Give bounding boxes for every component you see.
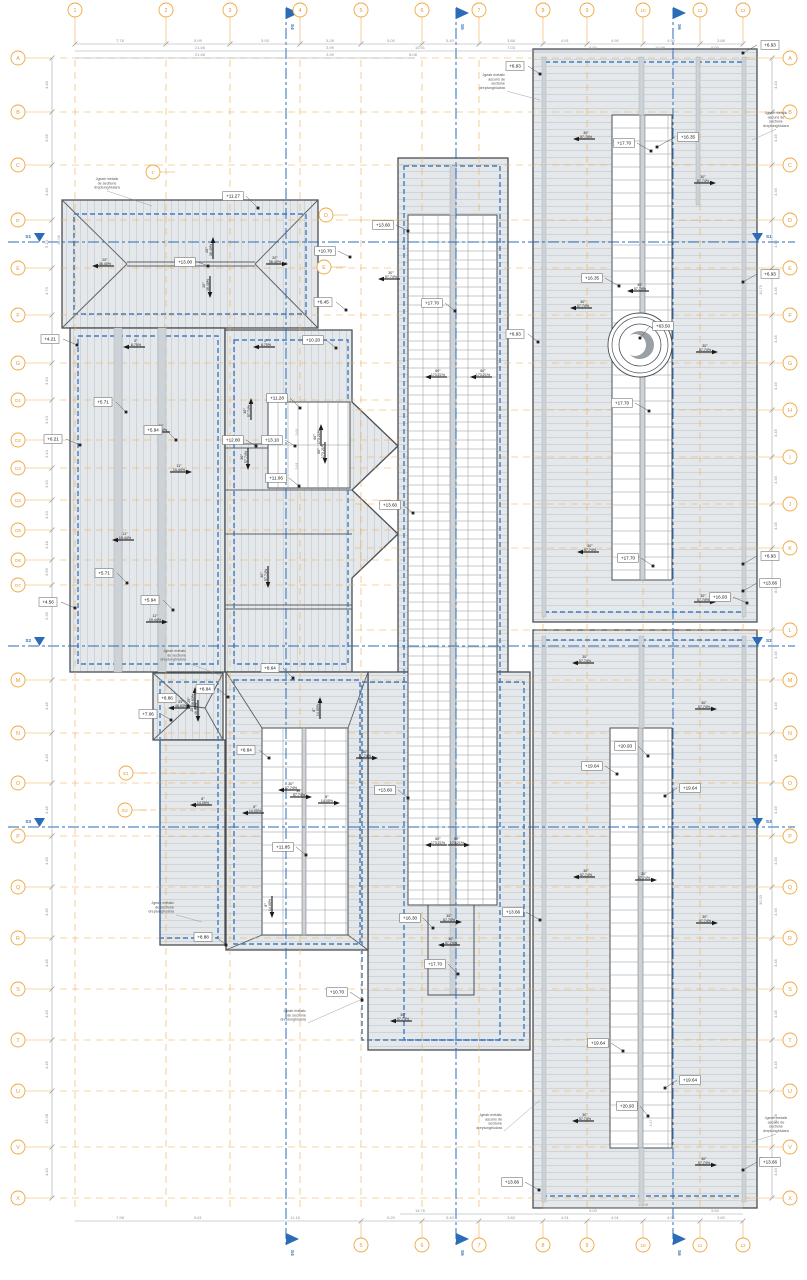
- label: 5.93: [261, 38, 270, 43]
- label: +6.93: [509, 332, 521, 337]
- roof-gutter-band: [639, 1148, 644, 1202]
- label: S6: [677, 1250, 682, 1256]
- label: 14.05%: [316, 703, 320, 716]
- skylight-mullion: [450, 215, 456, 905]
- label: 3.56: [44, 567, 49, 576]
- label: +17.70: [621, 556, 636, 561]
- label: +13.66: [763, 581, 778, 586]
- label: +13.10: [265, 438, 280, 443]
- label: 19.44%: [119, 536, 132, 540]
- label: N: [788, 731, 792, 737]
- label: +19.64: [591, 1041, 606, 1046]
- label: 7.98: [116, 1215, 125, 1220]
- label: D: [788, 218, 792, 224]
- label: +8.86: [161, 696, 173, 701]
- label: R: [788, 936, 792, 942]
- label: 4.45: [773, 753, 778, 762]
- leader-dot: [616, 773, 619, 776]
- label: 5: [360, 1243, 363, 1249]
- label: 4.45: [773, 521, 778, 530]
- label: 11: [698, 8, 703, 13]
- label: +8.84: [240, 748, 252, 753]
- leader-dot: [647, 755, 650, 758]
- label: 4.45: [773, 650, 778, 659]
- label: dreptunghiulara: [763, 1129, 790, 1133]
- label: dreptunghiulara: [148, 910, 175, 914]
- label: S: [16, 987, 20, 993]
- label: 173.21%: [450, 841, 465, 845]
- label: 4.40: [44, 80, 49, 89]
- leader-dot: [74, 607, 77, 610]
- label: 9: [586, 8, 589, 14]
- label: +13.00: [178, 260, 193, 265]
- label: 46.63%: [194, 702, 198, 715]
- label: +63.50: [656, 324, 671, 329]
- label: 3.85: [507, 1215, 516, 1220]
- label: 4.45: [773, 1009, 778, 1018]
- label: 6: [421, 1243, 424, 1249]
- leader-dot: [639, 337, 642, 340]
- label: 8.75%: [131, 343, 142, 347]
- label: 4.45: [44, 1060, 49, 1069]
- label: 3.18: [44, 540, 49, 549]
- label: 15.91: [415, 45, 426, 50]
- leader-dot: [432, 927, 435, 930]
- label: +16.35: [585, 276, 600, 281]
- label: 57.74%: [699, 919, 712, 923]
- label: +6.93: [509, 64, 521, 69]
- label: 57.74%: [699, 348, 712, 352]
- label: 15.09: [638, 1202, 649, 1207]
- label: +13.66: [763, 1160, 778, 1165]
- leader-dot: [539, 919, 542, 922]
- leader-dot: [650, 150, 653, 153]
- label: +19.64: [683, 786, 698, 791]
- label: D6: [15, 558, 21, 563]
- label: 4.90: [611, 38, 620, 43]
- label: 4.91: [611, 1215, 620, 1220]
- label: 10: [640, 8, 646, 13]
- label: S5: [460, 1250, 465, 1256]
- label: +6.93: [764, 272, 776, 277]
- label: 57.74%: [580, 135, 593, 139]
- label: 5.28: [326, 38, 335, 43]
- label: 30.33: [758, 894, 763, 905]
- roof-plan-svg: S4S4S5S5S6S6S1S1S2S2S3S37.785.995.935.28…: [0, 0, 807, 1280]
- label: +10.70: [318, 249, 333, 254]
- label: Q: [16, 885, 20, 891]
- label: 4.73: [44, 286, 49, 295]
- label: G: [788, 361, 792, 367]
- label: 36.40%: [99, 262, 112, 266]
- label: +5.71: [97, 400, 109, 405]
- label: +11.27: [226, 194, 240, 199]
- leader-dot: [170, 719, 173, 722]
- label: 4.45: [773, 958, 778, 967]
- label: S3: [766, 819, 772, 824]
- label: 5.30: [44, 611, 49, 620]
- label: 7: [478, 1243, 481, 1249]
- leader-dot: [537, 341, 540, 344]
- leader-dot: [227, 696, 230, 699]
- label: 7.78: [116, 38, 125, 43]
- label: +16.30: [403, 916, 418, 921]
- label: 12.28: [44, 1113, 49, 1124]
- label: +4.21: [44, 337, 56, 342]
- leader-dot: [125, 411, 128, 414]
- label: +7.06: [142, 712, 154, 717]
- label: 4.45: [773, 133, 778, 142]
- leader-dot: [361, 999, 364, 1002]
- label: 8: [542, 1243, 545, 1249]
- label: 4.40: [44, 187, 49, 196]
- label: S6: [677, 24, 682, 30]
- label: S2: [25, 638, 31, 643]
- label: +8.64: [264, 666, 276, 671]
- label: D: [324, 213, 328, 219]
- label: dreptunghiulara: [160, 658, 187, 662]
- label: S5: [460, 24, 465, 30]
- leader-dot: [225, 944, 228, 947]
- label: dreptunghiulara: [763, 124, 790, 128]
- label: 36.40%: [206, 278, 210, 291]
- leader-dot: [172, 609, 175, 612]
- label: 5: [360, 8, 363, 14]
- label: 3.61: [295, 463, 299, 470]
- label: E: [322, 265, 326, 271]
- label: 6: [421, 8, 424, 14]
- roof-gutter-band: [742, 636, 746, 1202]
- label: 14.05%: [249, 809, 262, 813]
- label: P: [16, 834, 20, 840]
- label: 4.45: [773, 805, 778, 814]
- label: 19.44%: [149, 618, 162, 622]
- label: H: [788, 408, 792, 414]
- label: +13.66: [506, 910, 521, 915]
- label: 4.45: [773, 907, 778, 916]
- label: 5.61: [194, 1215, 203, 1220]
- label: +19.64: [585, 764, 600, 769]
- label: 57.74%: [579, 1117, 592, 1121]
- leader-dot: [407, 230, 410, 233]
- label: 11.18: [290, 1215, 300, 1220]
- label: 57.74%: [634, 287, 647, 291]
- leader-dot: [664, 795, 667, 798]
- label: 57.74%: [697, 598, 710, 602]
- label: N: [16, 731, 20, 737]
- label: 4.90: [667, 38, 676, 43]
- leader-dot: [257, 207, 260, 210]
- label: 4.45: [773, 286, 778, 295]
- label: 8.75%: [261, 343, 272, 347]
- label: +10.70: [330, 990, 345, 995]
- leader-dot: [294, 445, 297, 448]
- label: E: [788, 266, 792, 272]
- label: +8.88: [197, 935, 209, 940]
- label: 57.74%: [247, 404, 251, 417]
- leader-dot: [349, 256, 352, 259]
- leader-dot: [407, 797, 410, 800]
- label: 3.10: [44, 376, 49, 385]
- label: 173.21%: [317, 429, 321, 444]
- dome-highlight: [624, 334, 646, 356]
- roof-gutter-band: [542, 636, 546, 1202]
- drawing-sheet: S4S4S5S5S6S6S1S1S2S2S3S37.785.995.935.28…: [0, 0, 807, 1280]
- label: 4.45: [773, 856, 778, 865]
- label: dreptunghiulara: [476, 1126, 503, 1130]
- label: 36.40%: [209, 243, 213, 256]
- label: 12: [740, 8, 746, 13]
- label: D1: [15, 398, 21, 403]
- leader-dot: [268, 757, 271, 760]
- label: 57.74%: [359, 754, 372, 758]
- roof-gutter-band: [639, 636, 644, 728]
- label: 3.13: [44, 510, 49, 519]
- label: S: [788, 987, 792, 993]
- label: 57.74%: [244, 450, 248, 463]
- label: 3.95: [44, 133, 49, 142]
- label: +17.70: [425, 301, 440, 306]
- label: 57.74%: [443, 918, 456, 922]
- label: 4.45: [44, 856, 49, 865]
- label: S3: [25, 819, 31, 824]
- label: +16.93: [713, 595, 728, 600]
- label: +13.60: [378, 788, 393, 793]
- leader-dot: [292, 677, 295, 680]
- label: +16.35: [681, 135, 696, 140]
- label: 14.05%: [197, 801, 210, 805]
- label: 173.21%: [321, 443, 325, 458]
- label: 4.45: [44, 701, 49, 710]
- label: 3.99: [326, 52, 335, 57]
- label: G: [16, 361, 20, 367]
- label: I: [789, 455, 791, 461]
- roof-gutter-band: [639, 57, 644, 115]
- label: +19.64: [683, 1078, 698, 1083]
- leader-dot: [335, 347, 338, 350]
- label: +13.60: [383, 503, 398, 508]
- label: 57.74%: [638, 876, 651, 880]
- label: 3.61: [295, 429, 299, 436]
- label: V: [788, 1145, 792, 1151]
- label: 9.00: [589, 1208, 598, 1213]
- leader-dot: [622, 1050, 625, 1053]
- label: 57.74%: [697, 179, 710, 183]
- leader-dot: [255, 445, 258, 448]
- leader-dot: [187, 705, 190, 708]
- label: A: [788, 56, 792, 62]
- leader-dot: [742, 1169, 745, 1172]
- label: +5.94: [144, 598, 156, 603]
- label: 4.45: [773, 1060, 778, 1069]
- label: +20.93: [620, 1104, 635, 1109]
- label: O: [788, 781, 792, 787]
- label: 8.08: [409, 52, 418, 57]
- label: 9: [586, 1243, 589, 1249]
- leader-dot: [76, 344, 79, 347]
- leader-dot: [647, 1115, 650, 1118]
- label: P: [788, 834, 792, 840]
- label: 5.10: [44, 239, 49, 248]
- label: D4: [15, 498, 21, 503]
- label: 14.05%: [321, 799, 334, 803]
- roof-area: [160, 740, 225, 945]
- leader-dot: [656, 146, 659, 149]
- label: 5.40: [446, 38, 455, 43]
- label: K: [788, 546, 792, 552]
- leader-dot: [345, 309, 348, 312]
- label: dreptunghiulara: [280, 1018, 307, 1022]
- label: A: [16, 56, 20, 62]
- label: 4.43: [773, 1167, 778, 1176]
- label: 4.43: [44, 1167, 49, 1176]
- label: 1': [151, 170, 155, 175]
- label: 10.75: [758, 284, 763, 295]
- label: J: [789, 502, 792, 508]
- label: 3.13: [44, 415, 49, 424]
- label: 3.47: [649, 1120, 653, 1127]
- label: 3.88: [507, 38, 516, 43]
- leader-dot: [454, 310, 457, 313]
- label: 4.91: [561, 1215, 570, 1220]
- label: M: [788, 678, 793, 684]
- label: Q: [788, 885, 792, 891]
- label: D5: [15, 528, 21, 533]
- label: S1: [766, 234, 772, 239]
- label: R: [16, 936, 20, 942]
- label: +11.85: [276, 845, 290, 850]
- label: 3.88: [717, 38, 726, 43]
- label: +5.71: [98, 571, 110, 576]
- label: 8: [542, 8, 545, 14]
- leader-dot: [126, 582, 129, 585]
- leader-dot: [742, 590, 745, 593]
- label: +6.21: [47, 437, 59, 442]
- leader-dot: [305, 854, 308, 857]
- label: 57.74%: [293, 793, 306, 797]
- label: 4.45: [773, 239, 778, 248]
- label: dreptunghiulara: [479, 86, 506, 90]
- label: C: [788, 163, 792, 169]
- label: 5.99: [194, 38, 203, 43]
- label: S2: [766, 638, 772, 643]
- label: S1: [25, 234, 31, 239]
- label: 36.40%: [269, 260, 282, 264]
- leader-dot: [742, 563, 745, 566]
- leader-dot: [746, 602, 749, 605]
- label: +4.56: [42, 600, 54, 605]
- label: dreptunghiulara: [94, 186, 121, 190]
- label: 4.45: [773, 701, 778, 710]
- label: O: [16, 781, 20, 787]
- label: +13.60: [376, 223, 391, 228]
- label: 12: [740, 1243, 746, 1248]
- leader-dot: [652, 565, 655, 568]
- label: +17.70: [428, 962, 443, 967]
- label: B: [788, 110, 792, 116]
- leader-dot: [457, 973, 460, 976]
- label: 3: [229, 8, 232, 14]
- label: 46.63%: [175, 704, 188, 708]
- label: +17.70: [617, 141, 632, 146]
- label: E: [16, 266, 20, 272]
- label: 10: [640, 1243, 646, 1248]
- label: 57.74%: [580, 873, 593, 877]
- label: E2: [122, 808, 128, 813]
- leader-dot: [298, 485, 301, 488]
- label: +20.93: [618, 744, 633, 749]
- label: 4: [299, 8, 302, 14]
- label: 4.45: [773, 187, 778, 196]
- label: 57.74%: [698, 1161, 711, 1165]
- label: 4.45: [44, 805, 49, 814]
- label: 9.50: [589, 45, 598, 50]
- label: 4.45: [773, 334, 778, 343]
- label: 4.45: [773, 475, 778, 484]
- label: +6.93: [764, 43, 776, 48]
- label: 57.74%: [698, 705, 711, 709]
- label: 4.45: [44, 958, 49, 967]
- leader-dot: [742, 52, 745, 55]
- skylight-mullion: [302, 728, 306, 935]
- label: +6.93: [764, 554, 776, 559]
- label: 3.15: [44, 479, 49, 488]
- skylight-mullion: [638, 728, 643, 1148]
- label: B: [16, 110, 20, 116]
- label: 173.21%: [431, 841, 446, 845]
- label: L: [789, 628, 792, 634]
- label: 11: [698, 1243, 703, 1248]
- roof-gutter-band: [450, 166, 456, 215]
- label: M: [16, 678, 21, 684]
- label: 9.60: [711, 1208, 720, 1213]
- label: 4.45: [44, 1009, 49, 1018]
- leader-dot: [299, 407, 302, 410]
- label: X: [788, 1196, 792, 1202]
- label: 4.43: [773, 80, 778, 89]
- leader-dot: [207, 265, 210, 268]
- label: 7: [478, 8, 481, 14]
- label: 4.91: [561, 38, 570, 43]
- label: 57.74%: [584, 548, 597, 552]
- label: 57.74%: [445, 941, 458, 945]
- label: 3.14: [44, 449, 49, 458]
- label: 57.74%: [385, 275, 398, 279]
- label: 5.00: [387, 38, 396, 43]
- leader-dot: [618, 285, 621, 288]
- leader-dot: [742, 281, 745, 284]
- label: D7: [15, 583, 21, 588]
- label: +5.94: [147, 428, 159, 433]
- leader-dot: [664, 1087, 667, 1090]
- label: 3.80: [717, 1215, 726, 1220]
- label: 21.66: [195, 52, 206, 57]
- label: 4.45: [773, 428, 778, 437]
- leader-dot: [79, 444, 82, 447]
- label: 173.21%: [476, 373, 491, 377]
- label: +6.45: [317, 300, 329, 305]
- label: S4: [290, 1250, 295, 1256]
- label: D': [16, 218, 20, 223]
- label: 173.21%: [431, 373, 446, 377]
- label: E1: [123, 771, 129, 776]
- label: +17.70: [615, 401, 630, 406]
- label: V: [16, 1145, 20, 1151]
- leader-dot: [648, 410, 651, 413]
- label: 15.76: [415, 1208, 426, 1213]
- label: 10.99: [655, 45, 666, 50]
- label: 4.45: [44, 907, 49, 916]
